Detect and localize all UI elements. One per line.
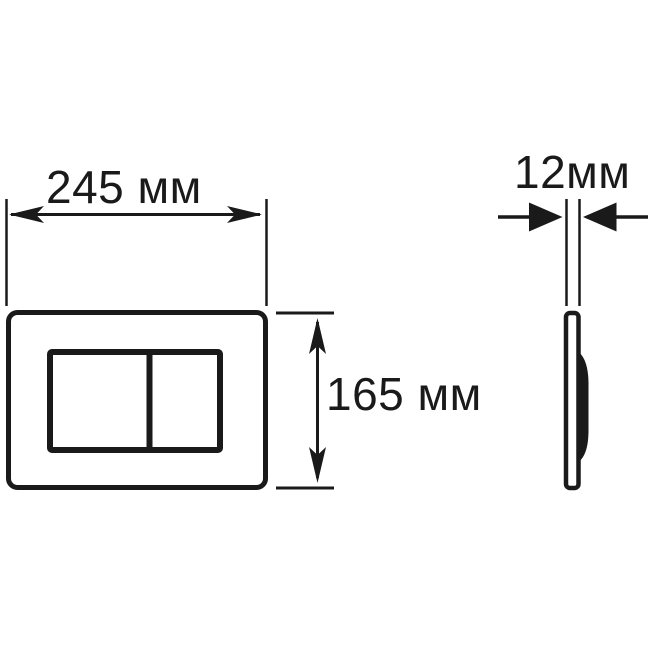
side-view (566, 313, 589, 488)
front-view (9, 313, 266, 488)
height-dimension-label: 165 мм (326, 371, 482, 417)
side-profile-outline (566, 313, 579, 488)
depth-dimension-label: 12мм (514, 149, 630, 195)
side-button-bump (579, 352, 589, 462)
width-dimension-label: 245 мм (46, 164, 202, 210)
width-dimension (7, 199, 267, 306)
technical-drawing-stage: 245 мм 165 мм 12мм (0, 0, 650, 650)
flush-plate-drawing (0, 0, 650, 650)
depth-dimension (498, 199, 648, 306)
arrowhead-inward-left-icon (583, 203, 617, 232)
arrowhead-inward-right-icon (529, 203, 563, 232)
